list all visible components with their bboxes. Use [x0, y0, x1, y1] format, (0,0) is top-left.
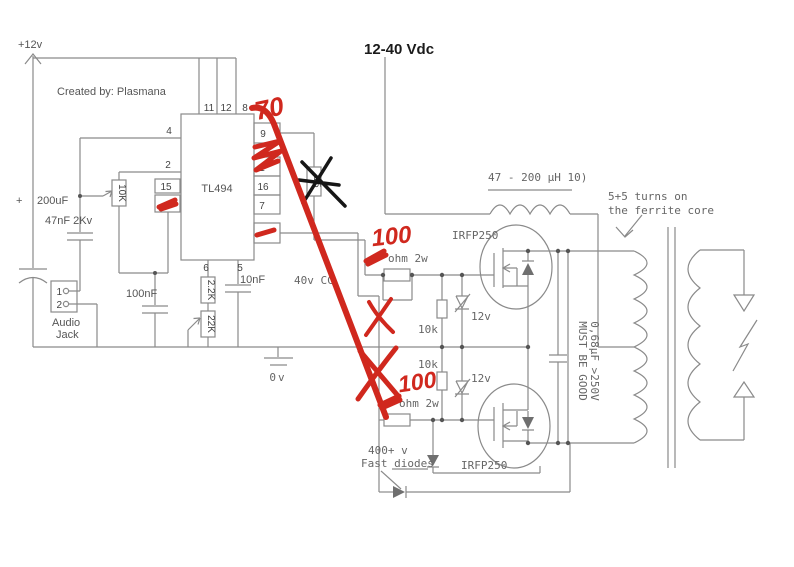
- created-by-label: Created by: Plasmana: [57, 86, 167, 98]
- cap-hv-label: 47nF 2Kv: [45, 215, 93, 227]
- res-10k-upper-body: [437, 300, 447, 318]
- pin-16-label: 16: [257, 182, 269, 193]
- audio-jack-body: [51, 281, 77, 312]
- spark-gap-arrow-down: [734, 295, 754, 311]
- pin-2-label: 2: [165, 160, 171, 171]
- ic-name-label: TL494: [201, 183, 232, 195]
- mosfet-upper-label: IRFP250: [452, 229, 498, 242]
- gate-res-upper-label: ohm 2w: [388, 252, 428, 265]
- pin-15-label: 15: [160, 182, 172, 193]
- pin7-stub: [254, 195, 280, 214]
- gate-res-lower-label: ohm 2w: [399, 397, 439, 410]
- ground-symbol: [264, 347, 293, 365]
- schematic-canvas: +12v Created by: Plasmana 12-40 Vdc TL49…: [0, 0, 794, 567]
- cap-input-plus-label: +: [16, 195, 22, 207]
- red-scribble-pin16-left: [159, 200, 176, 209]
- inductor-label: 47 - 200 µH 10): [488, 171, 587, 184]
- transformer-secondary: [688, 250, 700, 440]
- pot-10k-label: 10K: [116, 184, 127, 202]
- mosfet-upper-group: [480, 225, 552, 347]
- pin-5-label: 5: [237, 263, 243, 274]
- fast-diodes-note-1: 400+ v: [368, 444, 408, 457]
- res-10k-lower-body: [437, 372, 447, 390]
- red-scribble-res-lower: [380, 396, 400, 408]
- ground-label: 0v: [269, 371, 286, 384]
- pin-6-label: 6: [203, 263, 209, 274]
- turns-note-arrow: [616, 215, 642, 237]
- cap-100nf-label: 100nF: [126, 288, 157, 300]
- inductor-symbol: [490, 205, 570, 214]
- turns-note-1: 5+5 turns on: [608, 190, 687, 203]
- black-cross-out: [299, 158, 345, 206]
- transformer-primary: [634, 251, 647, 443]
- jack-label-2: Jack: [56, 329, 79, 341]
- spark-bolt-icon: [733, 320, 757, 371]
- turns-note-2: the ferrite core: [608, 204, 714, 217]
- red-value-100-lower: 100: [396, 366, 438, 397]
- zener-upper-symbol: [455, 275, 470, 347]
- mosfet-lower-group: [478, 347, 550, 468]
- jack-label-1: Audio: [52, 317, 80, 329]
- red-scribble-pin9: [254, 141, 281, 170]
- tank-cap-symbol: [549, 251, 567, 443]
- res-2k2-label: 2.2K: [205, 280, 216, 301]
- pin-11-label: 11: [204, 103, 215, 114]
- transformer-core: [668, 227, 675, 468]
- pin-9-label: 9: [260, 129, 266, 140]
- pot-22k-label: 22K: [205, 315, 216, 333]
- red-scribble-pin10: [257, 230, 274, 235]
- pin-7-label: 7: [259, 201, 265, 212]
- red-scribble-res-upper: [366, 251, 386, 264]
- note-40v-label: 40v CC: [294, 274, 334, 287]
- pin-12-label: 12: [220, 103, 232, 114]
- red-note-top: 70: [252, 90, 287, 125]
- body-diode-lower: [522, 417, 534, 429]
- wires-output-section: [385, 57, 757, 468]
- cap-input-label: 200uF: [37, 195, 68, 207]
- red-value-100-upper: 100: [370, 221, 413, 252]
- gate-resistor-upper: [384, 269, 410, 281]
- tank-cap-label-2: MUST BE GOOD: [576, 321, 589, 400]
- flyback-driver-schematic: +12v Created by: Plasmana 12-40 Vdc TL49…: [0, 0, 794, 567]
- res-10k-upper-label: 10k: [418, 323, 438, 336]
- jack-pin1-label: 1: [56, 287, 62, 298]
- supply-left-label: +12v: [18, 39, 43, 51]
- supply-right-label: 12-40 Vdc: [364, 41, 434, 58]
- fast-diodes-pointer: [381, 471, 401, 489]
- zener-lower-symbol: [455, 347, 470, 420]
- body-diode-upper: [522, 263, 534, 275]
- zener-upper-label: 12v: [471, 310, 491, 323]
- zener-lower-label: 12v: [471, 372, 491, 385]
- cap-10nf-label: 10nF: [240, 274, 265, 286]
- mosfet-lower-label: IRFP250: [461, 459, 507, 472]
- fast-diodes-note-2: Fast diodes: [361, 457, 434, 470]
- pot-10k-wiper: [80, 191, 112, 197]
- pin-4-label: 4: [166, 126, 172, 137]
- jack-pin2-label: 2: [56, 300, 62, 311]
- pot-22k-wiper: [188, 318, 200, 347]
- pin-8-label: 8: [242, 103, 248, 114]
- spark-gap-arrow-up: [734, 382, 754, 397]
